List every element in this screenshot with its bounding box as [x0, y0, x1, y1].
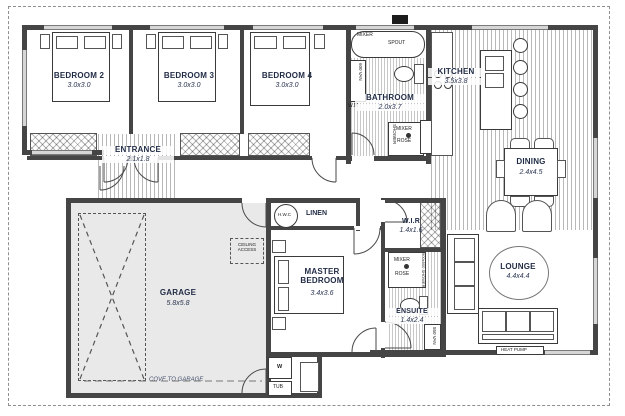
room-dims-ensuite: 1.4x2.4 [386, 317, 438, 324]
room-label-wir: W.I.R [388, 218, 434, 226]
window-bathroom-top [356, 25, 414, 30]
shower-mixer-label: MIXER [396, 127, 412, 133]
sink-bowl-icon [485, 73, 504, 88]
room-label-lounge: LOUNGE [492, 263, 544, 272]
shower-label-vert: SHOWER [389, 124, 396, 154]
room-label-master: MASTER BEDROOM [294, 268, 350, 286]
toilet-icon [394, 66, 414, 82]
pillow-icon [190, 36, 212, 49]
laundry-tub-label: TUB [273, 385, 283, 391]
toilet-cistern-icon [414, 64, 424, 84]
wall-master-bottom [266, 352, 446, 357]
bedside-table-icon [314, 34, 325, 49]
pillow-icon [84, 36, 106, 49]
wall-bed2-bed3 [129, 30, 133, 134]
room-dims-entrance: 2.1x1.8 [102, 156, 174, 163]
pillow-icon [278, 287, 289, 311]
meter-box [392, 15, 408, 24]
pillow-icon [283, 36, 306, 49]
stool-icon [513, 82, 528, 97]
window-bed3-top [150, 25, 224, 30]
window-bed4-top [253, 25, 323, 30]
room-label-bathroom: BATHROOM [355, 94, 425, 103]
shower-rose-label: ROSE [397, 139, 411, 145]
ensuite-mixer-label: MIXER [394, 258, 410, 264]
hwc-label: H.W.C [278, 213, 291, 218]
ensuite-vanity-label: 550 VAN [428, 327, 436, 348]
sofa-cushion [506, 311, 530, 332]
stool-icon [513, 60, 528, 75]
bath-spout-label: SPOUT [388, 41, 405, 47]
door-opening-bed4 [312, 156, 336, 160]
room-label-bedroom2: BEDROOM 2 [40, 72, 118, 81]
bedside-table-icon [272, 317, 286, 330]
ensuite-shower-size-label: 900x900 SHOWER [418, 253, 425, 287]
bedroom4-robe [248, 133, 310, 156]
door-opening-wir [381, 200, 385, 222]
window-lounge-bottom [545, 350, 590, 355]
room-label-dining: DINING [505, 158, 557, 167]
stool-icon [513, 104, 528, 119]
wall-hallway-north [27, 156, 349, 160]
room-dims-bedroom4: 3.0x3.0 [248, 82, 326, 89]
bedside-table-icon [272, 240, 286, 253]
sink-bowl-icon [485, 56, 504, 71]
sofa-cushion [454, 238, 475, 262]
pillow-icon [254, 36, 277, 49]
wall-garage-left [66, 198, 71, 398]
sofa-cushion [454, 286, 475, 310]
window-lounge-right [593, 258, 598, 324]
cove-to-garage-label: COVE TO GARAGE [146, 377, 206, 384]
door-opening-ensuite [381, 322, 385, 348]
room-label-bedroom4: BEDROOM 4 [248, 72, 326, 81]
room-dims-garage: 5.8x5.8 [141, 300, 215, 307]
room-label-garage: GARAGE [141, 289, 215, 298]
laundry-w-label: W [277, 364, 282, 370]
sofa-cushion [482, 311, 506, 332]
room-dims-lounge: 4.4x4.4 [492, 273, 544, 280]
door-opening-garage [242, 198, 266, 203]
room-dims-master: 3.4x3.6 [294, 290, 350, 297]
ensuite-rose-label: ROSE [395, 272, 409, 278]
bedside-table-icon [40, 34, 50, 49]
room-label-kitchen: KITCHEN [428, 68, 484, 77]
floor-plan: MIXER SPOUT 600 VAN W.M MIXER ROSE SHOWE… [0, 0, 625, 416]
rear-step [300, 362, 319, 392]
bedside-table-icon [112, 34, 122, 49]
bedside-table-icon [146, 34, 156, 49]
window-bed2-left [22, 50, 27, 126]
linen-label: LINEN [306, 210, 327, 217]
window-kitchen-top [472, 25, 548, 30]
ensuite-rose-icon [404, 264, 409, 269]
armchair-icon [522, 200, 552, 232]
room-label-entrance: ENTRANCE [102, 146, 174, 155]
room-label-bedroom3: BEDROOM 3 [150, 72, 228, 81]
window-dining-right [593, 138, 598, 198]
heat-pump-label: HEAT PUMP [501, 348, 527, 353]
window-bed2-front [32, 150, 92, 155]
stool-icon [513, 38, 528, 53]
room-dims-kitchen: 3.5x3.8 [428, 78, 484, 85]
door-opening-bathroom [352, 156, 374, 161]
pillow-icon [162, 36, 184, 49]
bedside-table-icon [218, 34, 228, 49]
wall-lounge-left [441, 198, 446, 356]
room-dims-bathroom: 2.0x3.7 [355, 104, 425, 111]
door-opening-master [354, 226, 380, 230]
car-space [78, 213, 146, 381]
sofa-cushion [454, 262, 475, 286]
dining-chair-icon [557, 160, 566, 178]
kitchen-bench [431, 32, 453, 156]
pillow-icon [278, 260, 289, 284]
room-dims-wir: 1.4x1.6 [388, 227, 434, 234]
bath-mixer-label: MIXER [357, 33, 373, 39]
room-dims-dining: 2.4x4.5 [505, 169, 557, 176]
dining-chair-icon [496, 160, 505, 178]
room-dims-bedroom3: 3.0x3.0 [150, 82, 228, 89]
room-label-ensuite: ENSUITE [386, 308, 438, 316]
armchair-icon [486, 200, 516, 232]
pillow-icon [56, 36, 78, 49]
shower-rose-icon [406, 133, 411, 138]
bedroom3-robe [180, 133, 240, 156]
ceiling-access-label: CEILING ACCESS [233, 243, 261, 253]
opening-master-corridor [358, 198, 383, 203]
sofa-base [482, 334, 554, 340]
window-bed2-top [44, 25, 112, 30]
room-dims-bedroom2: 3.0x3.0 [40, 82, 118, 89]
wall-bed3-bed4 [240, 30, 244, 134]
sofa-cushion [530, 311, 554, 332]
